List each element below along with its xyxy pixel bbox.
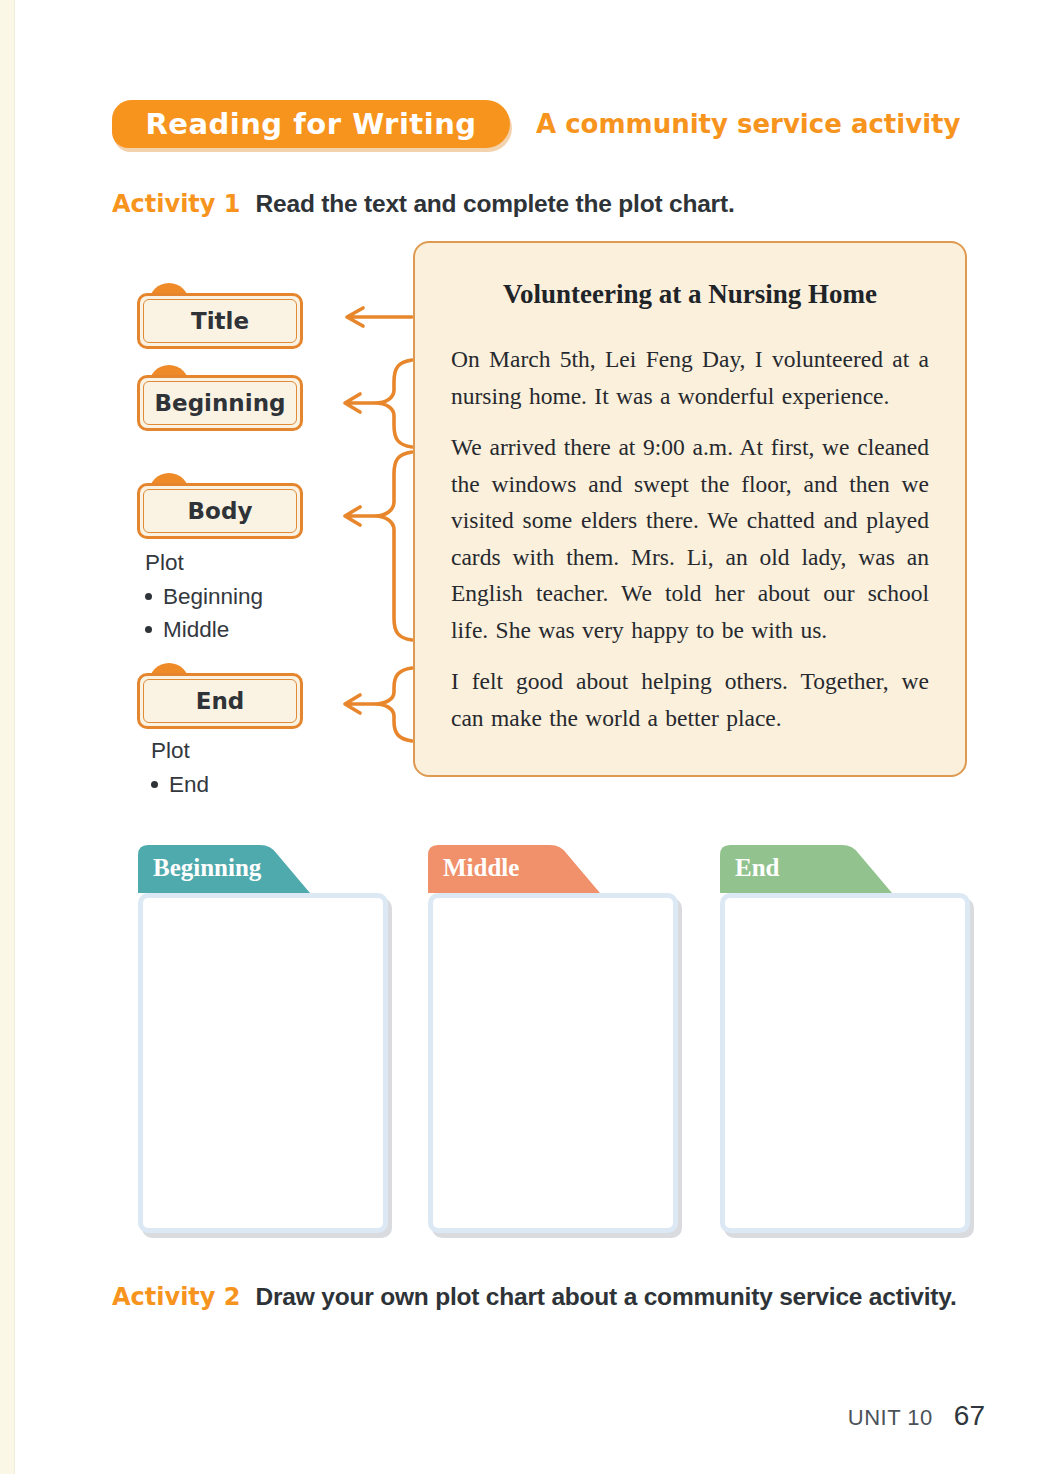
title-arrow-icon — [347, 308, 412, 326]
end-plot-heading: Plot — [151, 738, 209, 768]
end-plot-item: End — [151, 768, 209, 801]
bullet-dot-icon — [145, 626, 152, 633]
answer-writing-area-beginning — [138, 893, 388, 1233]
body-arrow-icon — [345, 507, 374, 525]
passage-paragraph-1: On March 5th, Lei Feng Day, I volunteere… — [451, 341, 929, 414]
folder-tab-label: Beginning — [153, 854, 261, 882]
plot-node-end-label: End — [196, 688, 245, 714]
body-plot-list: Plot Beginning Middle — [145, 550, 263, 646]
body-plot-item: Middle — [145, 613, 263, 646]
answer-folder-beginning: Beginning — [138, 845, 388, 1233]
connector-graphics — [330, 290, 415, 755]
passage-paragraph-2: We arrived there at 9:00 a.m. At first, … — [451, 429, 929, 648]
end-plot-item-label: End — [169, 772, 209, 798]
end-brace-icon — [375, 668, 412, 741]
activity2-heading: Activity 2 Draw your own plot chart abou… — [112, 1283, 957, 1311]
body-plot-item-label: Beginning — [163, 584, 263, 610]
answer-writing-area-middle — [428, 893, 678, 1233]
folder-tab-label: Middle — [443, 854, 519, 882]
body-plot-heading: Plot — [145, 550, 263, 580]
body-plot-item: Beginning — [145, 580, 263, 613]
plot-node-beginning: Beginning — [137, 375, 303, 431]
answer-folder-middle: Middle — [428, 845, 678, 1233]
plot-node-title-label: Title — [191, 308, 249, 334]
end-plot-list: Plot End — [151, 738, 209, 801]
plot-node-end: End — [137, 673, 303, 729]
plot-node-body-label: Body — [188, 498, 253, 524]
beginning-arrow-icon — [345, 394, 374, 412]
body-brace-icon — [375, 452, 412, 640]
footer-page-number: 67 — [954, 1400, 985, 1432]
folder-tab-label: End — [735, 854, 779, 882]
activity2-instruction: Draw your own plot chart about a communi… — [256, 1283, 957, 1311]
section-badge-label: Reading for Writing — [145, 107, 476, 141]
section-badge: Reading for Writing — [112, 100, 510, 148]
end-arrow-icon — [345, 695, 374, 713]
answer-writing-area-end — [720, 893, 970, 1233]
plot-node-body: Body — [137, 483, 303, 539]
activity2-label: Activity 2 — [112, 1283, 241, 1311]
plot-node-title: Title — [137, 293, 303, 349]
bullet-dot-icon — [151, 781, 158, 788]
page: Reading for Writing A community service … — [0, 0, 1043, 1474]
activity1-label: Activity 1 — [112, 190, 241, 218]
bullet-dot-icon — [145, 593, 152, 600]
plot-node-beginning-label: Beginning — [155, 390, 286, 416]
activity1-instruction: Read the text and complete the plot char… — [256, 190, 735, 218]
beginning-brace-icon — [375, 360, 412, 447]
passage-title: Volunteering at a Nursing Home — [451, 279, 929, 310]
answer-folder-end: End — [720, 845, 970, 1233]
page-footer: UNIT 10 67 — [848, 1400, 985, 1432]
body-plot-item-label: Middle — [163, 617, 229, 643]
footer-unit-label: UNIT 10 — [848, 1405, 933, 1431]
activity1-heading: Activity 1 Read the text and complete th… — [112, 190, 735, 218]
passage-box: Volunteering at a Nursing Home On March … — [413, 241, 967, 777]
section-subtitle: A community service activity — [536, 109, 960, 139]
page-edge-strip — [0, 0, 15, 1474]
passage-paragraph-3: I felt good about helping others. Togeth… — [451, 663, 929, 736]
